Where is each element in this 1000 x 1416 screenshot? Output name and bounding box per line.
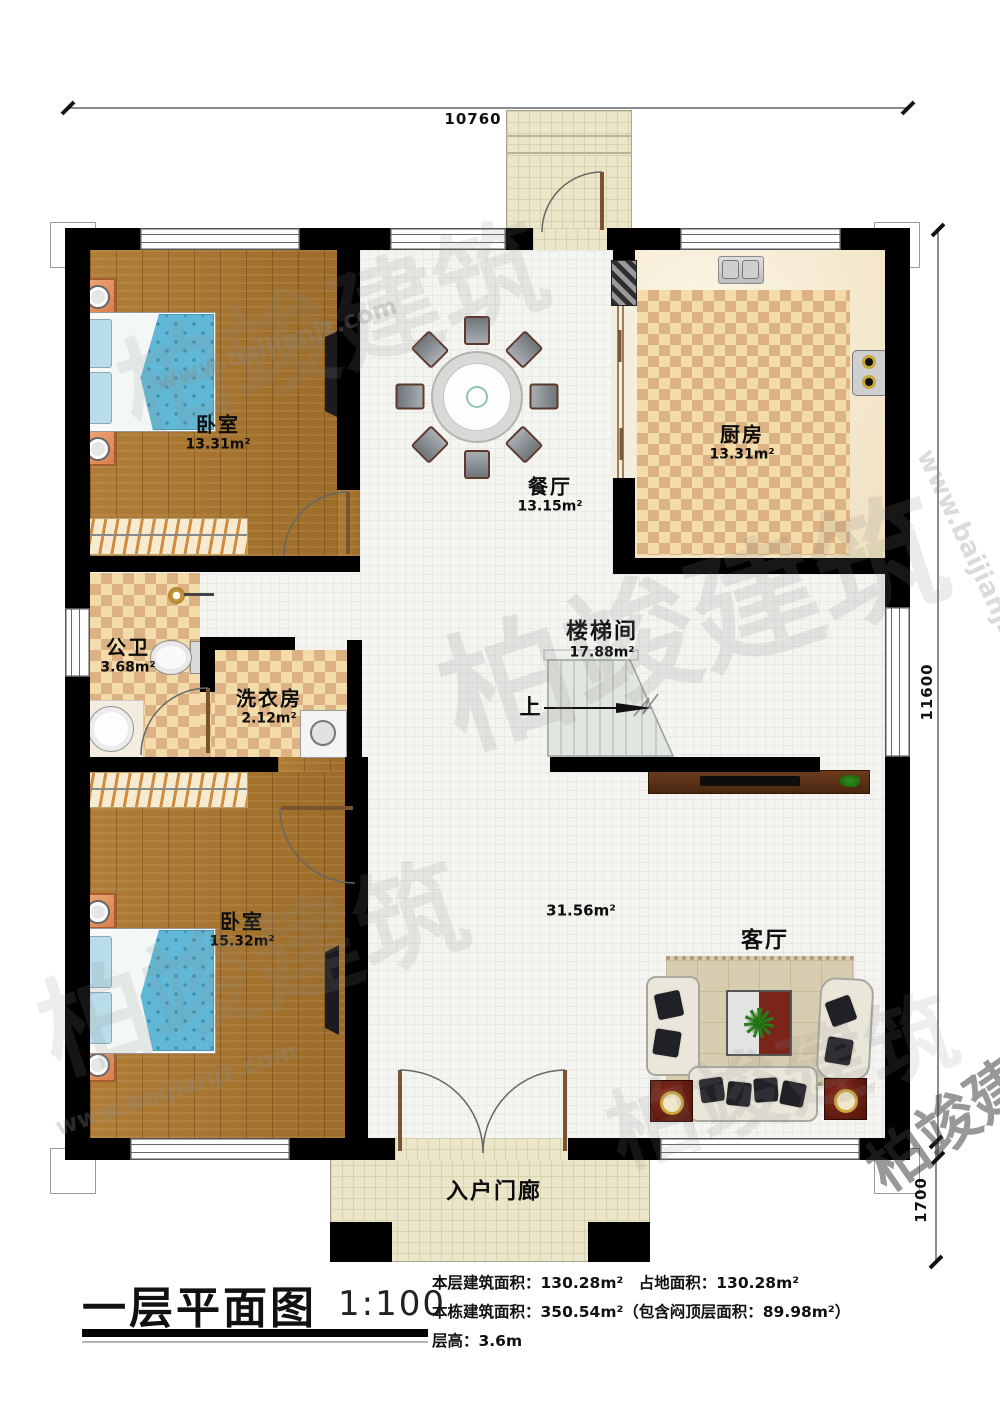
burner-icon <box>862 375 876 389</box>
wall <box>841 228 910 250</box>
stair-up-label: 上 <box>520 695 543 719</box>
room-area: 2.12m² <box>236 710 302 726</box>
wall <box>613 245 635 260</box>
sofa-cushion <box>654 990 685 1021</box>
tv-icon <box>325 945 339 1035</box>
wall <box>65 757 278 772</box>
lamp-icon <box>834 1089 858 1113</box>
room-area: 13.15m² <box>517 498 582 514</box>
up-text: 上 <box>520 695 543 719</box>
sink-basin <box>742 260 759 279</box>
stat-floor-area: 本层建筑面积：130.28m² 占地面积：130.28m² <box>432 1271 799 1293</box>
page-title: 一层平面图 <box>82 1272 317 1336</box>
sofa-cushion <box>824 1036 854 1066</box>
window <box>130 1138 290 1160</box>
lamp-icon <box>660 1091 684 1115</box>
window <box>680 228 841 250</box>
sofa-cushion <box>698 1076 725 1103</box>
table-center-ring <box>466 386 488 408</box>
chaise-icon <box>815 977 874 1082</box>
porch-pier <box>588 1222 650 1262</box>
stat-floor-height: 层高：3.6m <box>432 1329 522 1351</box>
sink-icon <box>88 706 134 752</box>
washer-door <box>310 720 336 746</box>
sofa-cushion <box>726 1081 752 1107</box>
toilet-icon <box>150 640 192 675</box>
title-underline <box>82 1329 428 1337</box>
plant-icon <box>744 1008 774 1038</box>
rear-porch-floor <box>506 110 632 232</box>
window <box>660 1138 860 1160</box>
room-name: 卧室 <box>209 910 274 933</box>
room-label-bathroom: 公卫 3.68m² <box>100 636 155 675</box>
wall <box>337 245 360 490</box>
rear-porch-step <box>506 135 632 137</box>
wardrobe-icon <box>82 772 248 808</box>
room-name: 厨房 <box>709 423 774 446</box>
chair-icon <box>396 384 425 410</box>
wall <box>65 228 90 608</box>
kitchen-doorway <box>613 304 635 478</box>
stair-rail-wall <box>550 757 820 772</box>
washing-machine-icon <box>300 710 347 758</box>
window <box>140 228 300 250</box>
wall <box>860 1138 910 1160</box>
room-area: 3.68m² <box>100 659 155 675</box>
chair-icon <box>530 384 559 410</box>
room-name: 卧室 <box>185 413 250 436</box>
room-area: 31.56m² <box>546 902 616 919</box>
sofa-cushion <box>753 1077 779 1103</box>
room-label-stairwell: 楼梯间 17.88m² <box>566 619 638 660</box>
wall <box>65 1138 130 1160</box>
plan-scale: 1:100 <box>338 1284 446 1324</box>
dimension-top: 10760 <box>444 110 501 128</box>
wall <box>885 228 910 607</box>
dimension-bottom-right: 1700 <box>912 1177 930 1223</box>
room-name: 餐厅 <box>517 475 582 498</box>
window <box>65 608 90 677</box>
side-table-icon <box>650 1080 693 1122</box>
side-table-icon <box>824 1078 867 1120</box>
stat-building-area: 本栋建筑面积：350.54m²（包含闷顶层面积：89.98m²） <box>432 1300 850 1322</box>
tv-icon <box>700 776 800 786</box>
bedroom2-doorway <box>278 757 345 772</box>
room-area: 13.31m² <box>185 436 250 452</box>
title-underline-thin <box>82 1341 428 1343</box>
room-label-kitchen: 厨房 13.31m² <box>709 423 774 462</box>
wall <box>200 637 215 692</box>
room-area: 15.32m² <box>209 933 274 949</box>
window <box>885 607 910 757</box>
room-name: 公卫 <box>100 636 155 659</box>
sliding-door-panel <box>611 260 637 306</box>
room-label-bedroom1: 卧室 13.31m² <box>185 413 250 452</box>
burner-icon <box>862 355 876 369</box>
room-label-dining: 餐厅 13.15m² <box>517 475 582 514</box>
room-area: 13.31m² <box>709 446 774 462</box>
chair-icon <box>464 450 490 479</box>
sofa-cushion <box>779 1080 807 1108</box>
entry-door-opening <box>395 1138 568 1160</box>
room-area: 17.88m² <box>566 645 638 661</box>
room-name: 客厅 <box>741 928 789 953</box>
wall <box>290 1138 395 1160</box>
wardrobe-icon <box>82 518 248 555</box>
wall <box>215 637 295 650</box>
wall <box>345 757 368 1160</box>
room-label-bedroom2: 卧室 15.32m² <box>209 910 274 949</box>
wall <box>885 757 910 1160</box>
room-name: 楼梯间 <box>566 619 638 644</box>
faucet-icon <box>168 587 185 604</box>
faucet-stem <box>184 593 214 596</box>
wall <box>506 228 533 250</box>
room-label-entry-porch: 入户门廊 <box>446 1179 542 1204</box>
chair-icon <box>464 316 490 345</box>
room-name: 入户门廊 <box>446 1179 542 1204</box>
kitchen-sink-icon <box>718 256 764 284</box>
porch-pier <box>330 1222 392 1262</box>
wall <box>568 1138 660 1160</box>
floor-plan: 卧室 13.31m² 餐厅 13.15m² 厨房 13.31m² 公卫 3.68… <box>0 0 1000 1416</box>
rear-porch-step <box>506 152 632 154</box>
dimension-right: 11600 <box>918 663 936 720</box>
living-area-value: 31.56m² <box>546 902 616 919</box>
bathroom-doorway <box>200 692 215 757</box>
wall <box>65 677 90 1160</box>
sink-basin <box>722 260 739 279</box>
room-name: 洗衣房 <box>236 687 302 710</box>
rear-door-opening <box>533 228 607 250</box>
wall <box>65 556 360 572</box>
plant-icon <box>840 775 860 787</box>
bedroom1-doorway <box>337 490 360 556</box>
sofa-cushion <box>652 1028 682 1058</box>
room-label-laundry: 洗衣房 2.12m² <box>236 687 302 726</box>
room-label-living: 客厅 <box>741 928 789 953</box>
stove-icon <box>852 350 888 396</box>
wall <box>347 640 362 772</box>
window <box>390 228 506 250</box>
wall <box>65 228 140 250</box>
wall <box>613 558 910 574</box>
